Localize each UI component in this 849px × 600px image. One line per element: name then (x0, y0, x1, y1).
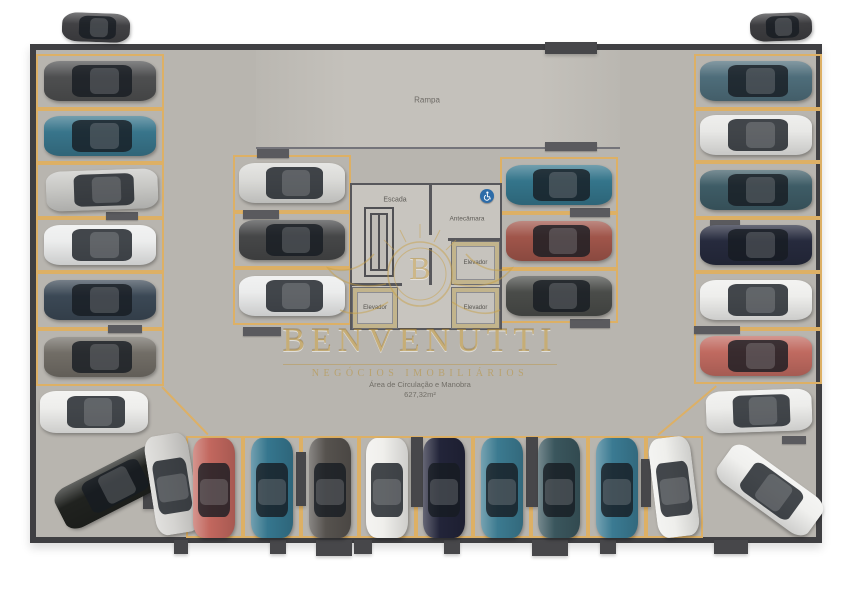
car (596, 438, 638, 538)
wheel-stop (782, 436, 806, 444)
structural-pillar (354, 540, 372, 554)
floorplan-stage: Rampa Elevador Elevador Elevador Escada … (0, 0, 849, 600)
car-roof (91, 176, 121, 203)
car (309, 438, 351, 538)
car-roof (746, 232, 775, 258)
car-roof (90, 287, 119, 313)
car-roof (282, 227, 310, 253)
structural-pillar (545, 42, 597, 54)
car-roof (746, 287, 775, 313)
car (44, 280, 156, 320)
ramp-label: Rampa (414, 96, 440, 105)
car-roof (282, 283, 310, 309)
car (62, 12, 131, 43)
car (705, 388, 812, 434)
car (239, 163, 345, 203)
structural-pillar (714, 540, 748, 554)
car-roof (746, 122, 775, 148)
car (700, 115, 812, 155)
car (251, 438, 293, 538)
car (45, 168, 158, 212)
car (44, 116, 156, 156)
car-roof (84, 398, 112, 426)
structural-pillar (526, 437, 538, 507)
car (423, 438, 465, 538)
circulation-area-caption: Área de Circulação e Manobra (320, 380, 520, 389)
car-roof (373, 479, 401, 505)
watermark-monogram: B (398, 250, 442, 287)
car-roof (282, 170, 310, 196)
car (481, 438, 523, 538)
structural-pillar (270, 540, 286, 554)
wheel-stop (694, 326, 740, 334)
car (40, 391, 148, 433)
car-roof (749, 397, 778, 426)
car-roof (488, 479, 516, 505)
car-roof (200, 479, 228, 505)
car (44, 225, 156, 265)
car-roof (746, 177, 775, 203)
car-roof (775, 17, 792, 36)
car-roof (90, 344, 119, 370)
car (44, 337, 156, 377)
car-roof (549, 283, 577, 309)
wheel-stop (545, 142, 597, 151)
car (700, 170, 812, 210)
car-roof (430, 479, 458, 505)
car-roof (316, 479, 344, 505)
car-roof (156, 473, 189, 503)
car-roof (258, 479, 286, 505)
structural-pillar (600, 540, 616, 554)
car (700, 336, 812, 376)
car-roof (90, 68, 119, 94)
car-roof (603, 479, 631, 505)
wheel-stop (106, 212, 138, 220)
car (193, 438, 235, 538)
car (700, 280, 812, 320)
car-roof (90, 232, 119, 258)
car (538, 438, 580, 538)
car (700, 225, 812, 265)
wheel-stop (257, 149, 289, 158)
structural-pillar (174, 540, 188, 554)
wheel-stop (243, 210, 279, 219)
car-roof (746, 68, 775, 94)
watermark-tagline: NEGÓCIOS IMOBILIÁRIOS (283, 364, 557, 379)
car-roof (90, 18, 108, 38)
circulation-area-value: 627,32m² (320, 390, 520, 399)
structural-pillar (444, 540, 460, 554)
wheel-stop (108, 325, 142, 333)
watermark-brand: BENVENUTTI (270, 322, 570, 360)
car (700, 61, 812, 101)
structural-pillar (411, 437, 423, 507)
car-roof (549, 172, 577, 198)
structural-pillar (316, 540, 352, 556)
structural-pillar (296, 452, 306, 506)
car-roof (746, 343, 775, 369)
structural-pillar (532, 540, 568, 556)
car (750, 12, 813, 42)
wheel-stop (570, 208, 610, 217)
car-roof (659, 476, 690, 505)
car-roof (545, 479, 573, 505)
car-roof (549, 228, 577, 254)
car (44, 61, 156, 101)
car (366, 438, 408, 538)
wheel-stop (570, 319, 610, 328)
car-roof (90, 123, 119, 149)
